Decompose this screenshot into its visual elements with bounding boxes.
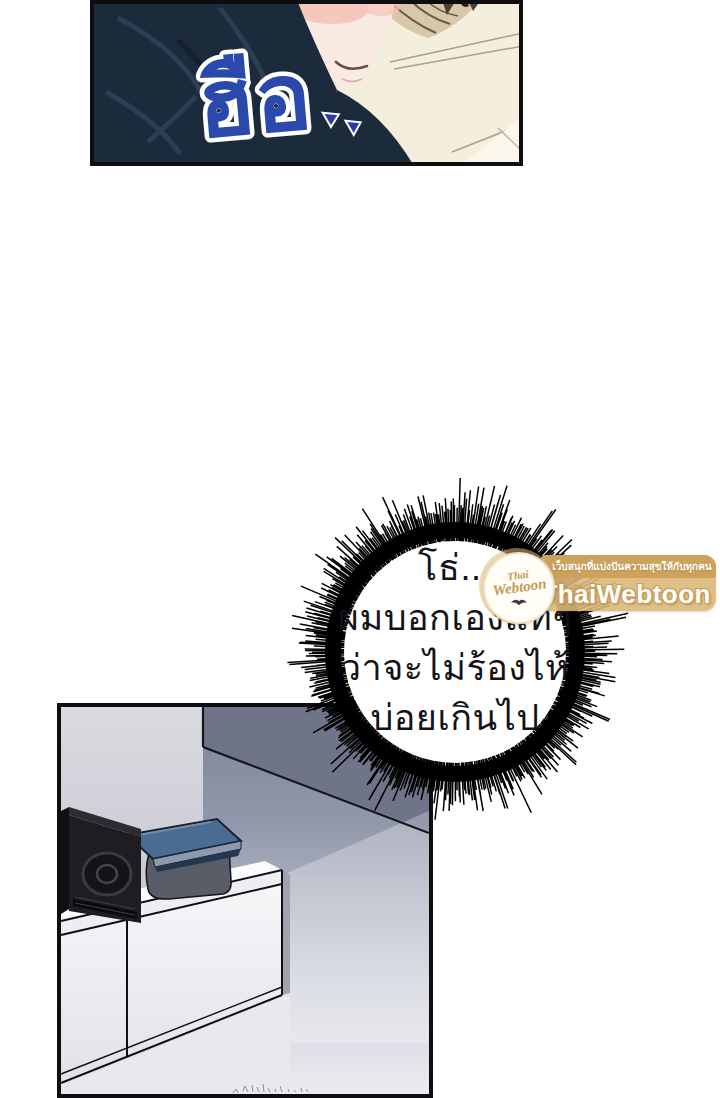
speaker-cone bbox=[83, 853, 131, 895]
watermark-badge: Thai Webtoon bbox=[483, 552, 555, 624]
watermark-tagline: เว็บสนุกที่แบ่งปันความสุขให้กับทุกคน bbox=[544, 559, 711, 574]
bird-icon bbox=[511, 598, 527, 606]
webtoon-page: ฮือ bbox=[0, 0, 720, 1098]
watermark-banner: เว็บสนุกที่แบ่งปันความสุขให้กับทุกคน Tha… bbox=[540, 555, 716, 611]
top-panel-illustration: ฮือ bbox=[90, 0, 523, 166]
top-panel: ฮือ bbox=[90, 0, 523, 166]
watermark-brand: ThaiWebtoon bbox=[541, 579, 711, 610]
bubble-line: ว่าจะไม่ร้องไห้ bbox=[305, 643, 605, 693]
cabinet-side bbox=[282, 870, 290, 995]
sfx-text: ฮือ bbox=[193, 43, 316, 158]
watermark-badge-logo: Thai Webtoon bbox=[491, 566, 548, 598]
watermark-tagline-band: เว็บสนุกที่แบ่งปันความสุขให้กับทุกคน bbox=[540, 555, 716, 578]
bubble-line: บ่อยเกินไป bbox=[305, 693, 605, 743]
thaiwebtoon-watermark: เว็บสนุกที่แบ่งปันความสุขให้กับทุกคน Tha… bbox=[483, 550, 720, 630]
